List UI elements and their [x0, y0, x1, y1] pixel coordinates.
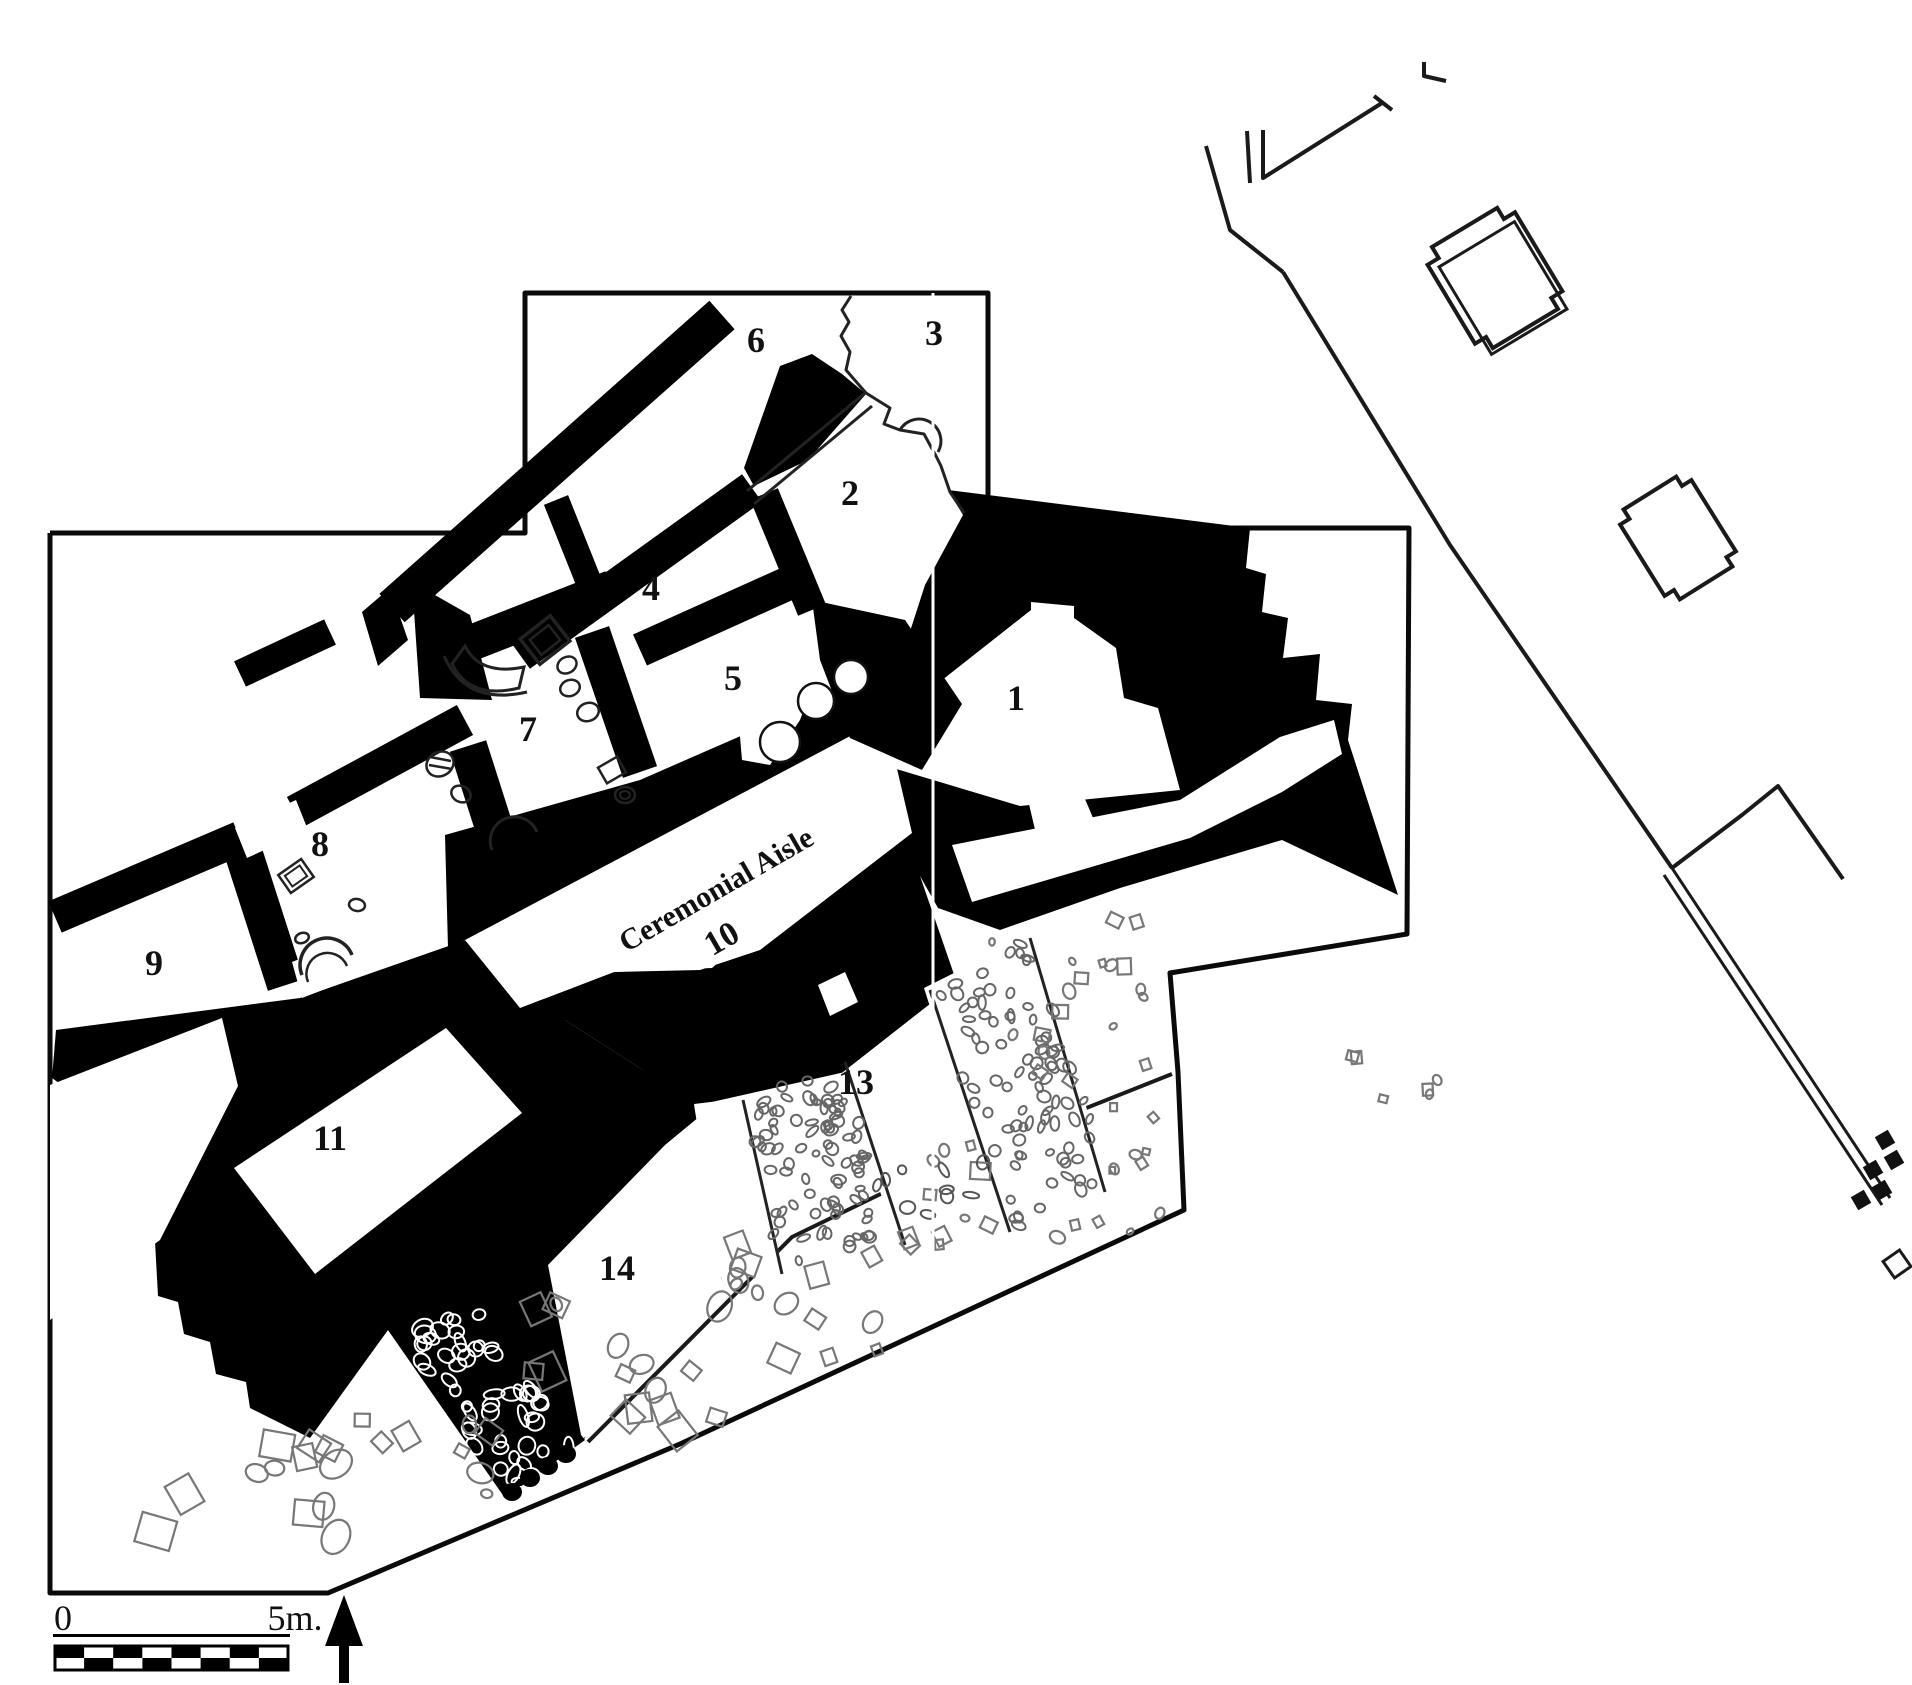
svg-text:13: 13: [838, 1062, 874, 1102]
svg-text:8: 8: [311, 824, 329, 864]
svg-text:7: 7: [519, 709, 537, 749]
svg-text:6: 6: [747, 320, 765, 360]
svg-text:1: 1: [1007, 678, 1025, 718]
svg-text:14: 14: [599, 1248, 635, 1288]
svg-text:Fig. 23. Plan of the monumenta: Fig. 23. Plan of the monumental building…: [534, 1680, 1485, 1685]
svg-text:11: 11: [313, 1118, 347, 1158]
svg-text:9: 9: [145, 943, 163, 983]
svg-text:5m.: 5m.: [267, 1598, 322, 1638]
svg-text:2: 2: [841, 473, 859, 513]
svg-text:5: 5: [724, 658, 742, 698]
svg-text:0: 0: [54, 1598, 72, 1638]
svg-text:4: 4: [642, 568, 660, 608]
svg-text:3: 3: [925, 313, 943, 353]
